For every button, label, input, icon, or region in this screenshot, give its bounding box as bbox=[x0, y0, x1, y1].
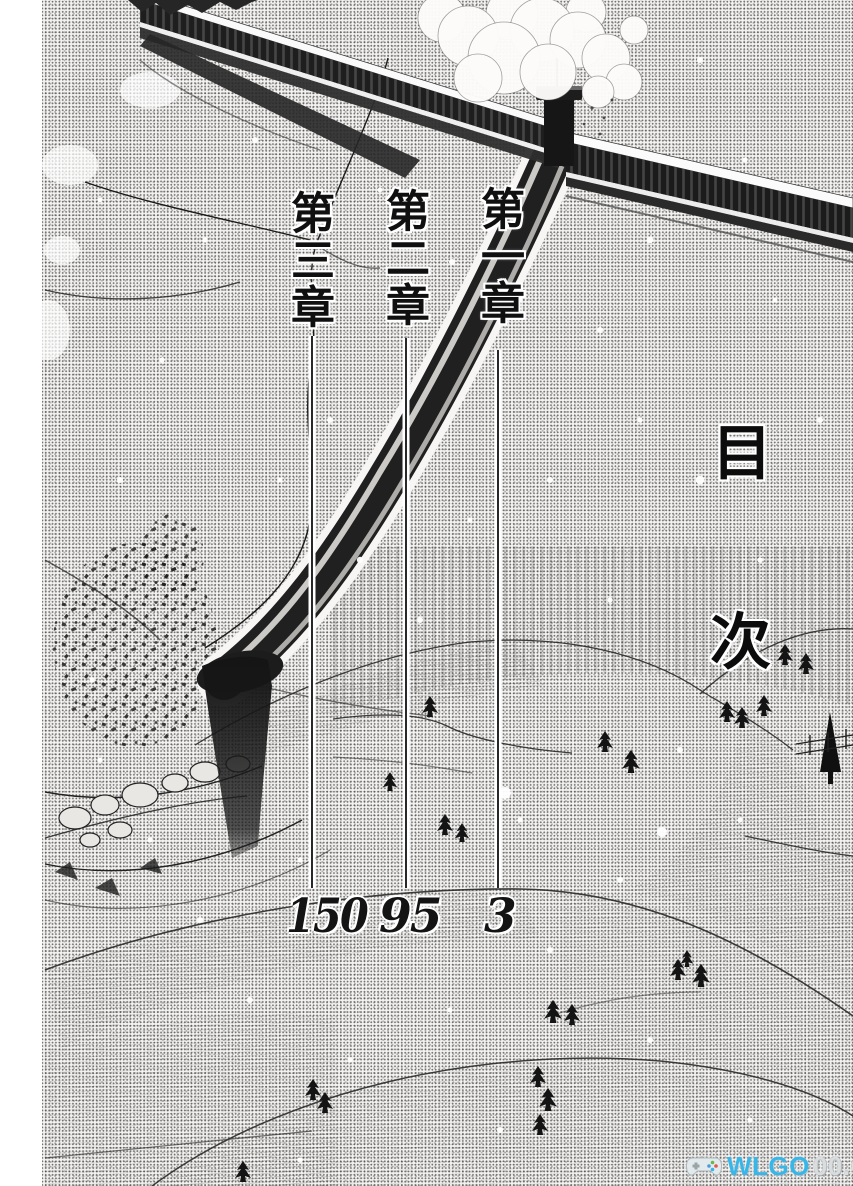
scree-rocks bbox=[53, 514, 217, 747]
snow-patches bbox=[26, 72, 180, 360]
toc-entry-chapter-3-page: 150 bbox=[286, 893, 367, 940]
watermark-primary: WLGO bbox=[727, 1151, 810, 1182]
toc-entry-chapter-1-page: 3 bbox=[484, 893, 515, 940]
debris-stones bbox=[45, 756, 330, 908]
toc-title-char-1: 目 bbox=[712, 424, 772, 484]
page-margin bbox=[0, 0, 42, 1186]
toc-entry-chapter-1-label: 第一章 bbox=[476, 186, 520, 327]
manga-toc-page: 第一章 3 第二章 95 第三章 150 目 次 WLGO00.COM bbox=[0, 0, 853, 1186]
artwork-illustration bbox=[0, 0, 853, 1186]
bridge-right-span bbox=[566, 132, 853, 262]
toc-entry-chapter-2-page: 95 bbox=[379, 893, 440, 940]
artwork-canvas bbox=[0, 0, 853, 1186]
toc-entry-chapter-2-label: 第二章 bbox=[381, 188, 425, 329]
toc-title-char-2: 次 bbox=[710, 612, 771, 673]
gamepad-icon bbox=[684, 1152, 724, 1180]
toc-entry-chapter-3-label: 第三章 bbox=[286, 190, 330, 331]
watermark: WLGO00.COM bbox=[684, 1148, 853, 1184]
watermark-secondary: 00.COM bbox=[813, 1151, 853, 1182]
